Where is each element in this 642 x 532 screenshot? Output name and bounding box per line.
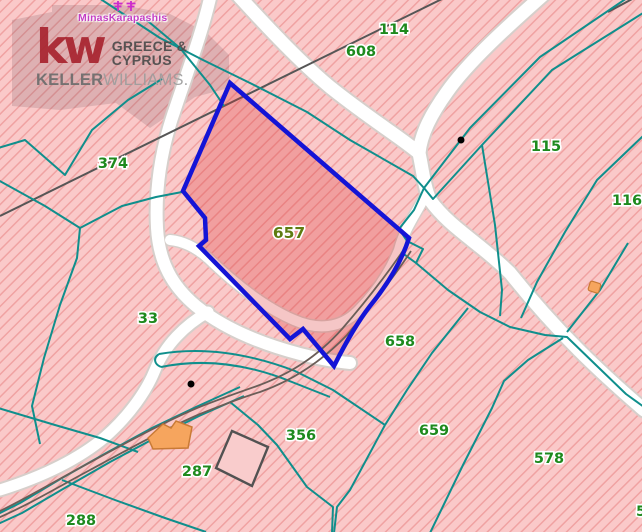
parcel-label-659: 659: [419, 423, 449, 439]
parcel-label-374: 374: [98, 156, 128, 172]
kw-logo-mark: kw: [36, 30, 103, 67]
parcel-label-114: 114: [379, 22, 409, 38]
parcel-label-287: 287: [182, 464, 212, 480]
kw-brand-name: KELLERWILLIAMS.: [36, 71, 188, 90]
parcel-label-5: 5: [636, 504, 642, 520]
parcel-label-116: 116: [612, 193, 642, 209]
kw-logo: kw GREECE & CYPRUS KELLERWILLIAMS.: [36, 30, 188, 90]
parcel-label-658: 658: [385, 334, 415, 350]
parcel-label-115: 115: [531, 139, 561, 155]
kw-region-text: GREECE & CYPRUS: [112, 39, 188, 68]
parcel-label-608: 608: [346, 44, 376, 60]
well-dot: [458, 137, 465, 144]
well-dot: [188, 381, 195, 388]
parcel-label-33: 33: [138, 311, 158, 327]
map-viewport[interactable]: 114608115116374657336586593562875782885 …: [0, 0, 642, 532]
parcel-label-288: 288: [66, 513, 96, 529]
parcel-label-356: 356: [286, 428, 316, 444]
parcel-label-657: 657: [273, 224, 305, 242]
parcel-label-578: 578: [534, 451, 564, 467]
